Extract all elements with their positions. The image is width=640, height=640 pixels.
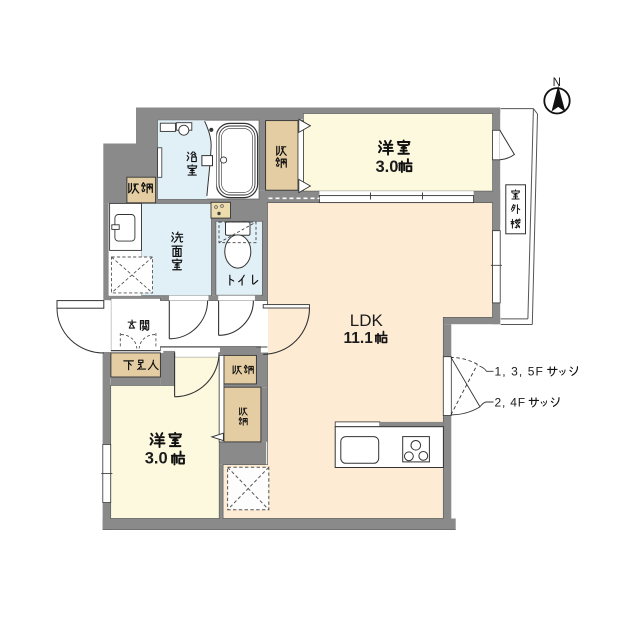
svg-text:LDK: LDK (350, 311, 384, 330)
svg-text:3.0: 3.0 (145, 450, 168, 468)
svg-text:N: N (553, 77, 561, 89)
svg-text:2, 4F: 2, 4F (495, 396, 526, 410)
svg-text:11.1: 11.1 (344, 330, 374, 347)
svg-text:1, 3, 5F: 1, 3, 5F (495, 365, 545, 379)
svg-text:3.0: 3.0 (376, 158, 399, 176)
